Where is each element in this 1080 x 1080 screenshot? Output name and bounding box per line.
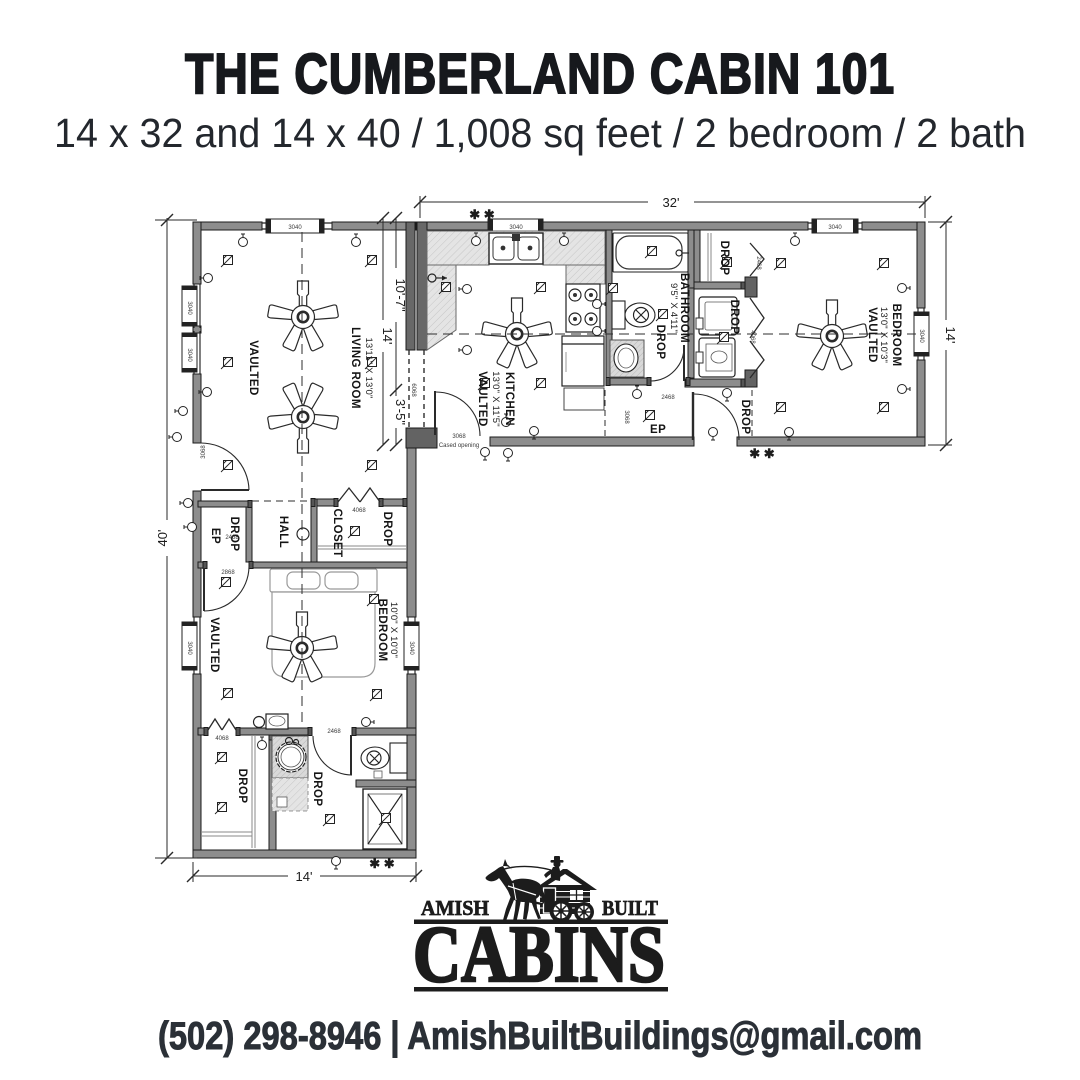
svg-text:DROP: DROP [739, 400, 751, 435]
svg-text:2468: 2468 [661, 395, 675, 401]
svg-text:3040: 3040 [918, 329, 924, 343]
svg-text:BEDROOM: BEDROOM [376, 599, 388, 662]
svg-text:EP: EP [650, 424, 666, 436]
svg-text:10'-7": 10'-7" [393, 278, 408, 312]
svg-text:KITCHEN: KITCHEN [503, 372, 515, 426]
svg-text:HALL: HALL [277, 516, 289, 548]
svg-text:DROP: DROP [236, 769, 248, 804]
svg-text:3040: 3040 [509, 225, 523, 231]
svg-text:DROP: DROP [381, 512, 393, 547]
svg-text:THE CUMBERLAND CABIN 101: THE CUMBERLAND CABIN 101 [185, 42, 895, 106]
svg-text:2468: 2468 [225, 535, 239, 541]
svg-text:3068: 3068 [452, 434, 466, 440]
svg-text:LIVING ROOM: LIVING ROOM [349, 327, 361, 409]
svg-text:3040: 3040 [186, 301, 192, 315]
svg-text:DROP: DROP [228, 517, 240, 552]
svg-text:DROP: DROP [654, 325, 666, 360]
svg-text:VAULTED: VAULTED [476, 371, 488, 426]
svg-text:DROP: DROP [728, 300, 740, 335]
svg-text:✱ ✱: ✱ ✱ [749, 446, 775, 461]
svg-text:13'0" X 11'5": 13'0" X 11'5" [490, 371, 501, 427]
svg-text:3040: 3040 [186, 348, 192, 362]
svg-text:4068: 4068 [749, 330, 755, 344]
svg-text:✱ ✱: ✱ ✱ [469, 207, 495, 222]
svg-text:2868: 2868 [221, 570, 235, 576]
svg-text:3068: 3068 [201, 445, 207, 459]
svg-text:Cased opening: Cased opening [439, 443, 479, 449]
svg-text:14': 14' [943, 327, 958, 344]
svg-text:VAULTED: VAULTED [208, 617, 220, 672]
svg-text:VAULTED: VAULTED [866, 307, 878, 362]
svg-text:DROP: DROP [718, 241, 730, 276]
svg-text:6068: 6068 [410, 383, 416, 397]
svg-text:3040: 3040 [828, 225, 842, 231]
svg-text:(502) 298-8946 | AmishBuiltBui: (502) 298-8946 | AmishBuiltBuildings@gma… [158, 1015, 922, 1058]
svg-text:3040: 3040 [408, 641, 414, 655]
svg-text:14 x 32 and 14 x 40 / 1,008 sq: 14 x 32 and 14 x 40 / 1,008 sq feet / 2 … [54, 110, 1026, 156]
svg-text:2468: 2468 [327, 729, 341, 735]
svg-text:DROP: DROP [311, 772, 323, 807]
svg-text:CABINS: CABINS [413, 909, 665, 999]
svg-text:VAULTED: VAULTED [247, 340, 259, 395]
svg-text:3040: 3040 [288, 225, 302, 231]
svg-text:14': 14' [380, 328, 395, 345]
svg-text:10'0" X 10'0": 10'0" X 10'0" [388, 602, 399, 658]
svg-text:9'5" X 4'11": 9'5" X 4'11" [668, 283, 679, 333]
svg-text:32': 32' [663, 195, 680, 210]
svg-text:14': 14' [296, 869, 313, 884]
svg-text:BEDROOM: BEDROOM [890, 304, 902, 367]
svg-text:3040: 3040 [186, 641, 192, 655]
svg-text:13'11" X 13'0": 13'11" X 13'0" [363, 337, 374, 398]
svg-text:13'0" X 10'3": 13'0" X 10'3" [878, 307, 889, 363]
svg-text:40': 40' [155, 530, 170, 547]
svg-text:3068: 3068 [623, 410, 629, 424]
svg-text:✱ ✱: ✱ ✱ [369, 856, 395, 871]
svg-text:CLOSET: CLOSET [331, 508, 343, 557]
svg-text:2468: 2468 [755, 256, 761, 270]
svg-text:4068: 4068 [215, 736, 229, 742]
svg-text:3'-5": 3'-5" [393, 399, 408, 425]
svg-text:EP: EP [209, 528, 221, 544]
svg-text:4068: 4068 [352, 508, 366, 514]
